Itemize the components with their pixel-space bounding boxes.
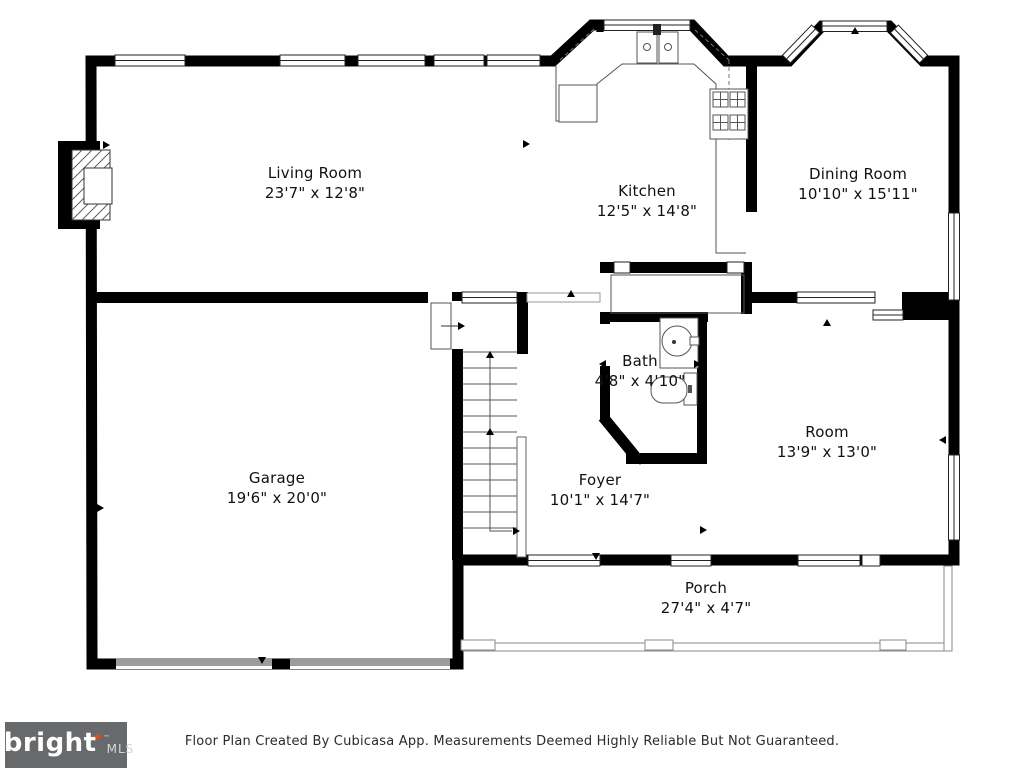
room-name: Porch [661,578,752,598]
room-name: Room [777,422,877,442]
front-wall-windows [528,555,880,566]
stair-window [462,292,517,303]
cased-opening [527,293,600,302]
room-label-dining-room: Dining Room 10'10" x 15'11" [798,164,918,204]
floor-plan-drawing [0,0,1024,768]
room-dimensions: 10'1" x 14'7" [550,490,650,510]
room-label-kitchen: Kitchen 12'5" x 14'8" [597,181,697,221]
room-name: Garage [227,468,327,488]
refrigerator-icon [559,85,597,122]
room-label-bath: Bath 4'8" x 4'10" [595,351,686,391]
room-label-porch: Porch 27'4" x 4'7" [661,578,752,618]
room-label-foyer: Foyer 10'1" x 14'7" [550,470,650,510]
room-name: Dining Room [798,164,918,184]
room-dimensions: 10'10" x 15'11" [798,184,918,204]
stove-icon [710,89,748,139]
dining-side-window [949,213,960,300]
room-label-living-room: Living Room 23'7" x 12'8" [265,163,365,203]
room-dimensions: 27'4" x 4'7" [661,598,752,618]
room-dimensions: 23'7" x 12'8" [265,183,365,203]
room-name: Living Room [265,163,365,183]
kitchen-bay-window [604,20,690,31]
room-dimensions: 19'6" x 20'0" [227,488,327,508]
floor-plan-page: Living Room 23'7" x 12'8" Kitchen 12'5" … [0,0,1024,768]
room-label-garage: Garage 19'6" x 20'0" [227,468,327,508]
disclaimer-text: Floor Plan Created By Cubicasa App. Meas… [0,734,1024,749]
room-dimensions: 4'8" x 4'10" [595,371,686,391]
room-name: Bath [595,351,686,371]
room-dimensions: 12'5" x 14'8" [597,201,697,221]
room-name: Kitchen [597,181,697,201]
room-label-room: Room 13'9" x 13'0" [777,422,877,462]
room-dimensions: 13'9" x 13'0" [777,442,877,462]
room-side-window [949,455,960,540]
living-room-windows [115,55,540,66]
room-name: Foyer [550,470,650,490]
fireplace-icon [58,141,112,229]
